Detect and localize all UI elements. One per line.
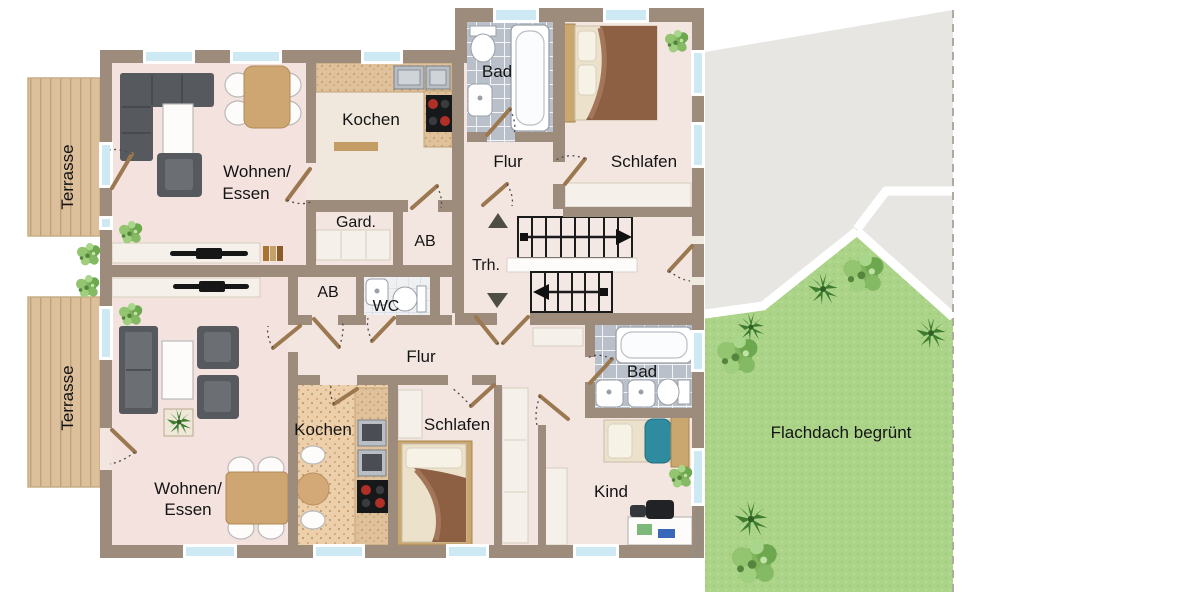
chair-icon <box>301 511 325 529</box>
sideboard-icon <box>565 183 691 207</box>
watermark-text: McGrundriss <box>693 506 703 558</box>
armchair-icon <box>157 153 202 197</box>
label-wc: WC <box>373 298 400 315</box>
wardrobe-icon <box>316 230 390 260</box>
shelf-icon <box>334 142 378 151</box>
window <box>143 49 195 64</box>
stair-landing <box>507 258 637 272</box>
label-ab-lower: AB <box>317 284 338 301</box>
window <box>573 544 619 559</box>
toilet-icon <box>470 26 496 62</box>
label-schlafen-upper: Schlafen <box>611 152 677 171</box>
round-table-icon <box>297 473 329 505</box>
bed-icon <box>563 24 657 122</box>
label-bad-lower: Bad <box>627 362 657 381</box>
label-terrasse-upper: Terrasse <box>58 144 77 209</box>
label-terrasse-lower: Terrasse <box>58 365 77 430</box>
label-kochen-upper: Kochen <box>342 110 400 129</box>
window <box>691 122 705 168</box>
stove-icon <box>357 480 388 513</box>
label-flachdach: Flachdach begrünt <box>771 423 912 442</box>
window <box>99 306 113 360</box>
toilet-icon <box>657 379 690 405</box>
terrace-lower: Terrasse <box>28 297 100 487</box>
desk-icon <box>628 517 692 545</box>
label-kochen-lower: Kochen <box>294 420 352 439</box>
label-wohnen-upper-2: Essen <box>222 184 269 203</box>
bathtub-icon <box>616 327 692 363</box>
label-schlafen-lower: Schlafen <box>424 415 490 434</box>
window <box>99 216 113 230</box>
coffee-table-icon <box>163 104 193 154</box>
window <box>313 544 365 559</box>
window <box>446 544 489 559</box>
bed-icon <box>604 415 689 467</box>
sofa-icon <box>119 326 158 414</box>
dining-table-icon <box>225 66 301 128</box>
floor-plan-drawing: Flachdach begrünt Terrasse Terrasse <box>0 0 1200 600</box>
floor-plan-canvas: Flachdach begrünt Terrasse Terrasse <box>0 0 1200 600</box>
window <box>230 49 282 64</box>
window <box>183 544 237 559</box>
window <box>99 142 113 188</box>
window <box>691 448 705 506</box>
label-kind: Kind <box>594 482 628 501</box>
bathtub-icon <box>511 25 549 131</box>
tv-sideboard-upper <box>112 243 283 263</box>
window <box>691 330 705 372</box>
window <box>691 50 705 96</box>
label-gard: Gard. <box>336 214 376 231</box>
label-ab-upper: AB <box>414 233 435 250</box>
label-wohnen-lower-2: Essen <box>164 500 211 519</box>
plant-box-icon <box>164 409 193 436</box>
window <box>603 7 649 23</box>
sink-icon <box>468 84 492 116</box>
label-trh: Trh. <box>472 257 500 274</box>
label-bad-upper: Bad <box>482 62 512 81</box>
label-flur-lower: Flur <box>406 347 436 366</box>
label-flur-upper: Flur <box>493 152 523 171</box>
window <box>361 49 403 64</box>
stove-icon <box>426 95 452 132</box>
coffee-table-icon <box>162 341 193 399</box>
label-wohnen-lower-1: Wohnen/ <box>154 479 222 498</box>
books-icon <box>263 246 283 261</box>
terrace-upper: Terrasse <box>28 78 100 236</box>
label-wohnen-upper-1: Wohnen/ <box>223 162 291 181</box>
tv-sideboard-lower <box>112 278 260 297</box>
chair-icon <box>301 446 325 464</box>
toilet-icon <box>417 286 426 312</box>
window <box>493 7 539 23</box>
sink-icon <box>394 66 450 89</box>
bed-icon <box>396 441 472 545</box>
